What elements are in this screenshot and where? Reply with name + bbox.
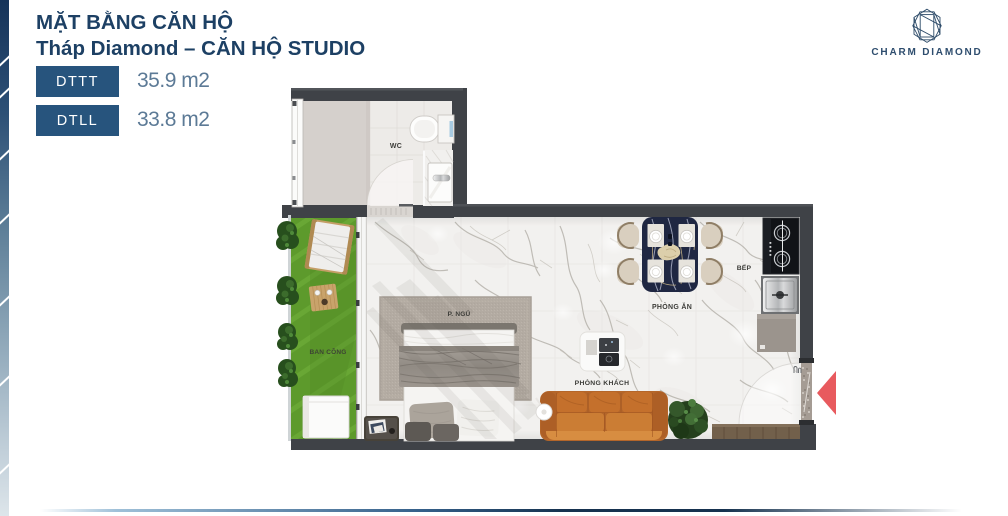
svg-text:PHÒNG ĂN: PHÒNG ĂN	[652, 302, 692, 311]
svg-text:PHÒNG KHÁCH: PHÒNG KHÁCH	[575, 378, 630, 387]
svg-text:P. NGỦ: P. NGỦ	[448, 309, 471, 318]
svg-text:WC: WC	[390, 143, 402, 150]
svg-text:BAN CÔNG: BAN CÔNG	[310, 347, 347, 356]
